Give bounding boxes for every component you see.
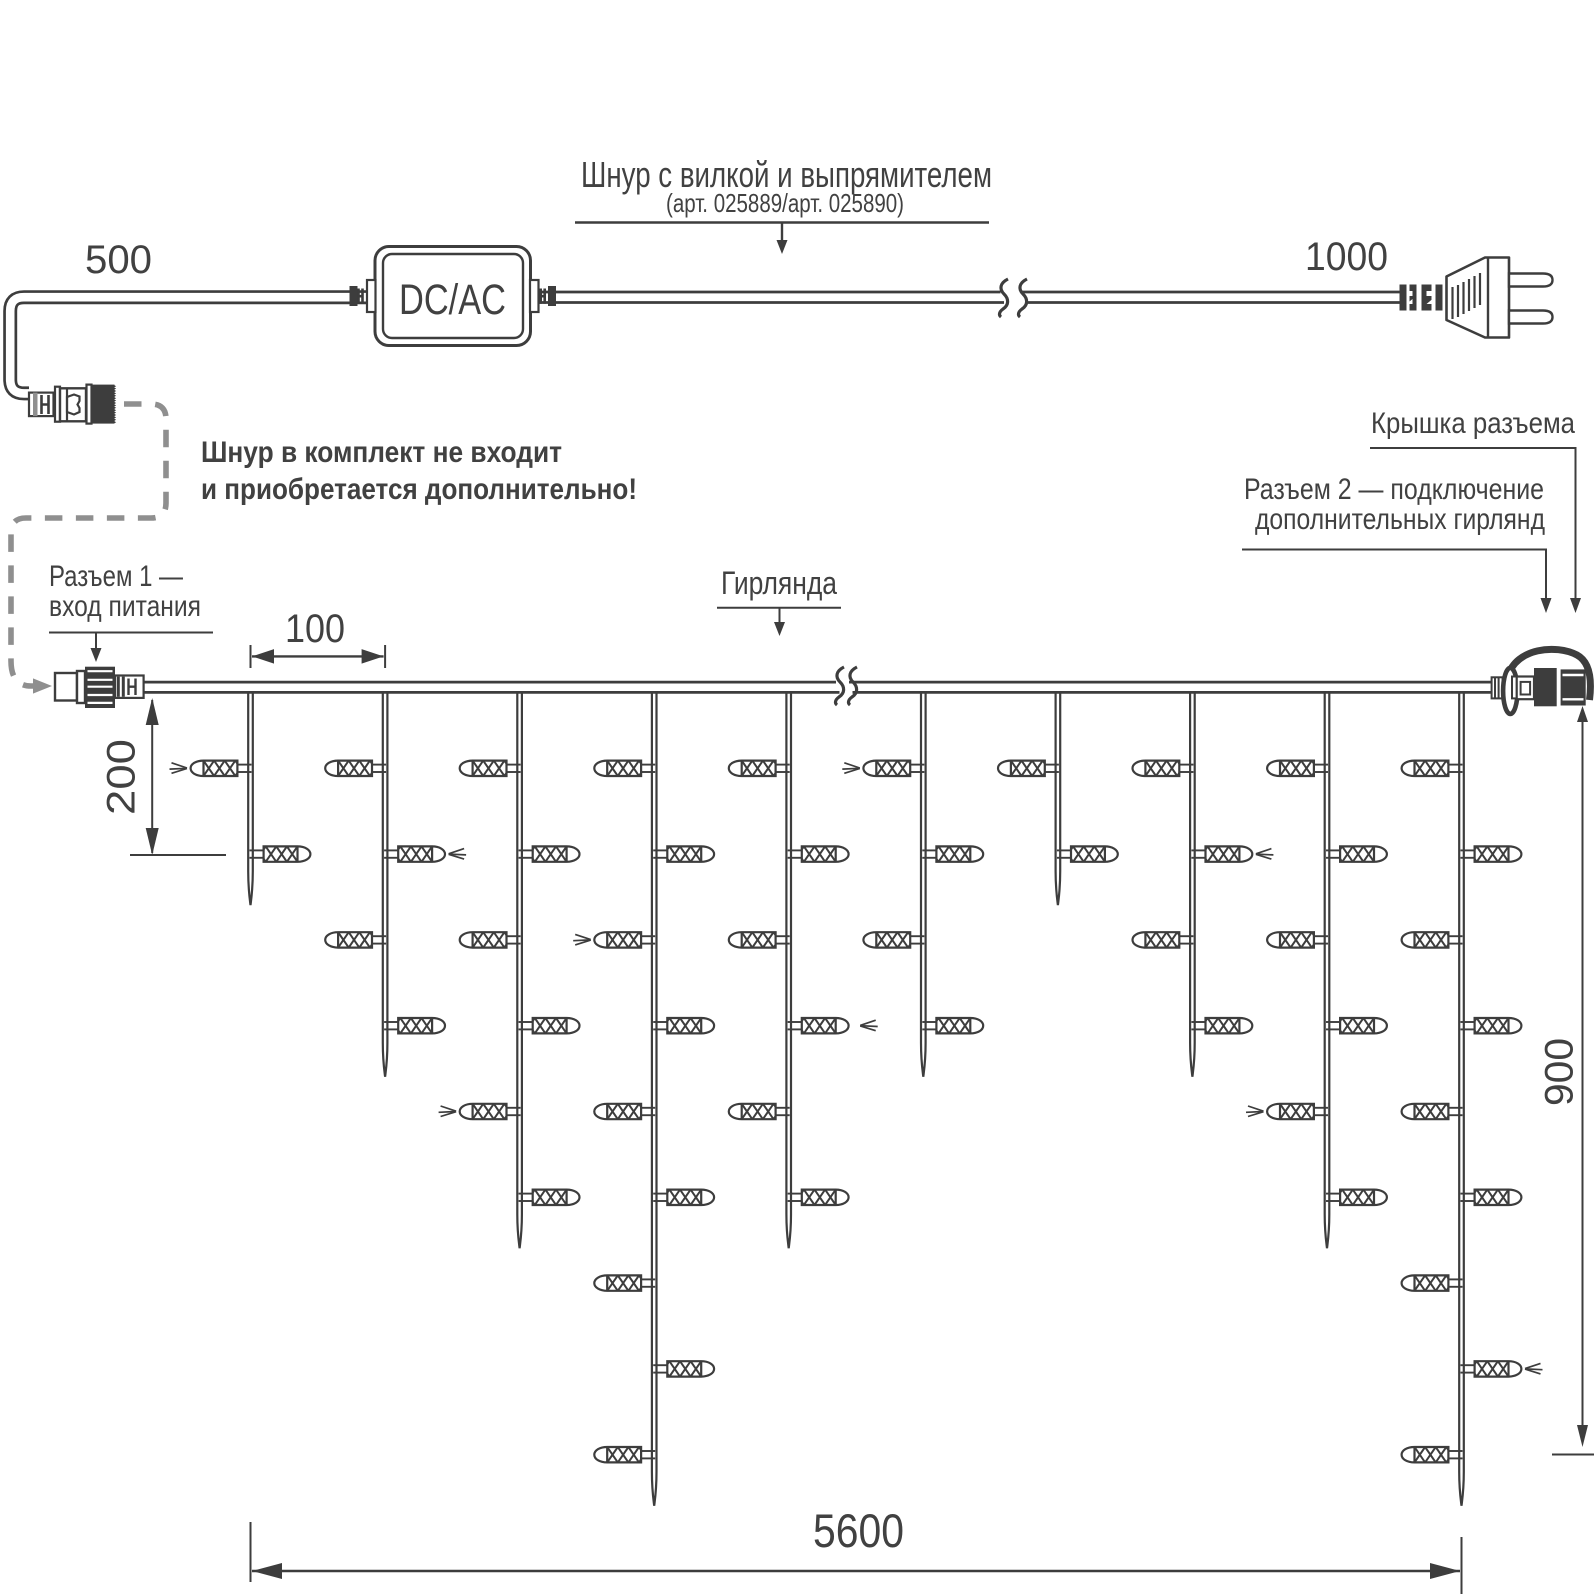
svg-text:1000: 1000 xyxy=(1305,235,1388,279)
svg-text:Разъем 1 —: Разъем 1 — xyxy=(49,560,183,593)
svg-text:5600: 5600 xyxy=(813,1504,904,1557)
svg-text:(арт. 025889/арт. 025890): (арт. 025889/арт. 025890) xyxy=(666,188,904,218)
svg-text:200: 200 xyxy=(100,739,144,815)
svg-text:вход питания: вход питания xyxy=(49,590,201,623)
svg-text:500: 500 xyxy=(85,238,152,282)
svg-text:Шнур в комплект не входит: Шнур в комплект не входит xyxy=(201,436,562,469)
svg-text:100: 100 xyxy=(285,607,345,651)
svg-text:Разъем 2 — подключение: Разъем 2 — подключение xyxy=(1244,473,1544,506)
svg-text:Гирлянда: Гирлянда xyxy=(721,565,837,601)
svg-text:дополнительных гирлянд: дополнительных гирлянд xyxy=(1255,503,1545,536)
svg-text:DC/AC: DC/AC xyxy=(399,276,506,324)
svg-text:Крышка разъема: Крышка разъема xyxy=(1371,407,1575,440)
svg-text:и приобретается дополнительно!: и приобретается дополнительно! xyxy=(201,473,637,506)
svg-text:900: 900 xyxy=(1538,1038,1582,1106)
